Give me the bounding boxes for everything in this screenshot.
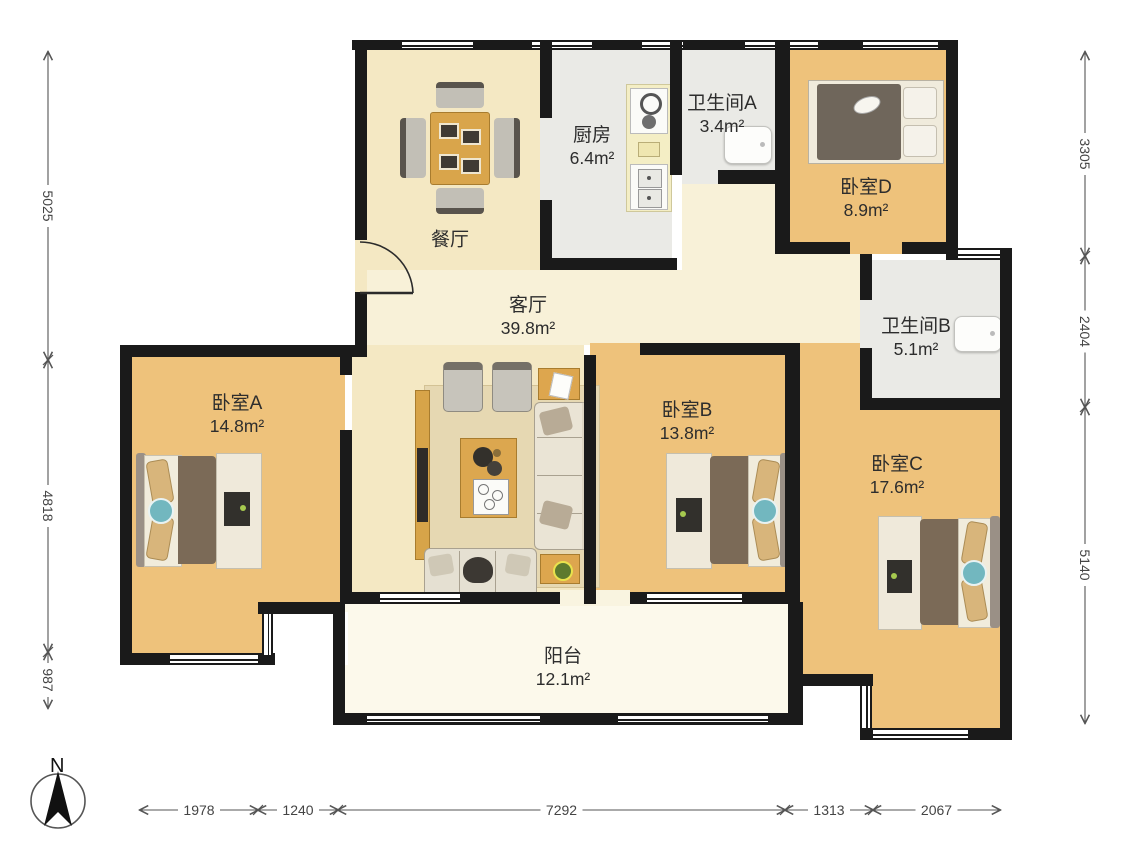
wall-bath-b-left-upper (860, 254, 872, 300)
room-label-dining: 餐厅 (431, 229, 469, 252)
window-bed-b-south (647, 592, 742, 604)
wall-bed-a-top (120, 345, 367, 357)
room-label-bath-b: 卫生间B5.1m² (881, 315, 951, 361)
sink (630, 164, 668, 210)
wall-kitchen-bath-a (670, 40, 682, 175)
window-step (262, 614, 273, 655)
bed-b (666, 453, 790, 567)
stove (630, 88, 668, 134)
north-label: N (50, 755, 64, 777)
window-balcony-2 (618, 714, 768, 724)
wall-balcony-left (333, 602, 345, 725)
wall-entry-upper (355, 40, 367, 240)
svg-text:1240: 1240 (282, 802, 313, 818)
wall-bath-a-bed-d (775, 40, 790, 254)
bed-a (136, 453, 260, 567)
counter-item (638, 142, 660, 157)
room-label-bed-c: 卧室C17.6m² (870, 453, 924, 499)
svg-text:7292: 7292 (546, 802, 577, 818)
wall-living-bed-b (584, 355, 596, 604)
window-living-south (380, 592, 460, 604)
dining-table (430, 112, 490, 185)
svg-text:2067: 2067 (921, 802, 952, 818)
armchair (443, 362, 483, 412)
notch-bed-c (795, 686, 862, 742)
dining-chair (494, 118, 520, 178)
coffee-table (460, 438, 517, 518)
window-top-dining (402, 40, 473, 50)
window-top-bed-d2 (863, 40, 938, 50)
wall-kitchen-left-upper (540, 40, 552, 118)
bed-d (808, 80, 944, 164)
dining-chair (436, 188, 484, 214)
window-bed-c-west (860, 686, 872, 730)
wall-kitchen-bottom (540, 258, 677, 270)
wall-bath-b-bottom (860, 398, 1012, 410)
wall-bed-c-step (790, 674, 873, 686)
svg-text:1313: 1313 (813, 802, 844, 818)
room-label-bed-d: 卧室D8.9m² (840, 176, 892, 222)
wall-bed-b-top (640, 343, 800, 355)
floor-plan: 餐厅厨房6.4m²卫生间A3.4m²卧室D8.9m²客厅39.8m²卫生间B5.… (0, 0, 1134, 842)
wall-bed-b-right (785, 343, 800, 604)
bath-b-tub (954, 316, 1002, 352)
svg-text:4818: 4818 (40, 490, 56, 521)
svg-text:2404: 2404 (1077, 316, 1093, 347)
room-label-bath-a: 卫生间A3.4m² (687, 92, 757, 138)
room-label-living: 客厅39.8m² (501, 294, 555, 340)
north-indicator: N (31, 755, 85, 828)
hall-right-floor (790, 254, 860, 345)
wall-balcony-right (788, 602, 803, 725)
room-label-balcony: 阳台12.1m² (536, 645, 590, 691)
side-table (538, 368, 580, 400)
room-label-bed-b: 卧室B13.8m² (660, 399, 714, 445)
wall-bed-d-right (946, 40, 958, 260)
wall-bed-a-left (120, 345, 132, 665)
room-label-bed-a: 卧室A14.8m² (210, 392, 264, 438)
window-bed-c-south (873, 728, 968, 740)
room-label-kitchen: 厨房6.4m² (570, 124, 615, 170)
window-bed-a (170, 653, 258, 665)
dining-chair (436, 82, 484, 108)
dining-chair (400, 118, 426, 178)
wall-right (1000, 248, 1012, 740)
wall-bed-a-right-upper (340, 345, 352, 375)
svg-text:1978: 1978 (183, 802, 214, 818)
svg-text:987: 987 (40, 668, 56, 692)
bath-b-door-sill (860, 300, 872, 348)
window-bath-b (958, 248, 1005, 260)
svg-text:5140: 5140 (1077, 549, 1093, 580)
svg-text:5025: 5025 (40, 190, 56, 221)
side-table (540, 554, 580, 584)
window-balcony-1 (367, 714, 540, 724)
wall-bed-a-right-lower (340, 430, 352, 604)
armchair (492, 362, 532, 412)
wall-bed-d-bottom-left (775, 242, 850, 254)
bed-c (878, 516, 1000, 628)
wall-step-top (258, 602, 345, 614)
corridor-floor (682, 182, 790, 274)
svg-text:3305: 3305 (1077, 138, 1093, 169)
tv (417, 448, 428, 522)
